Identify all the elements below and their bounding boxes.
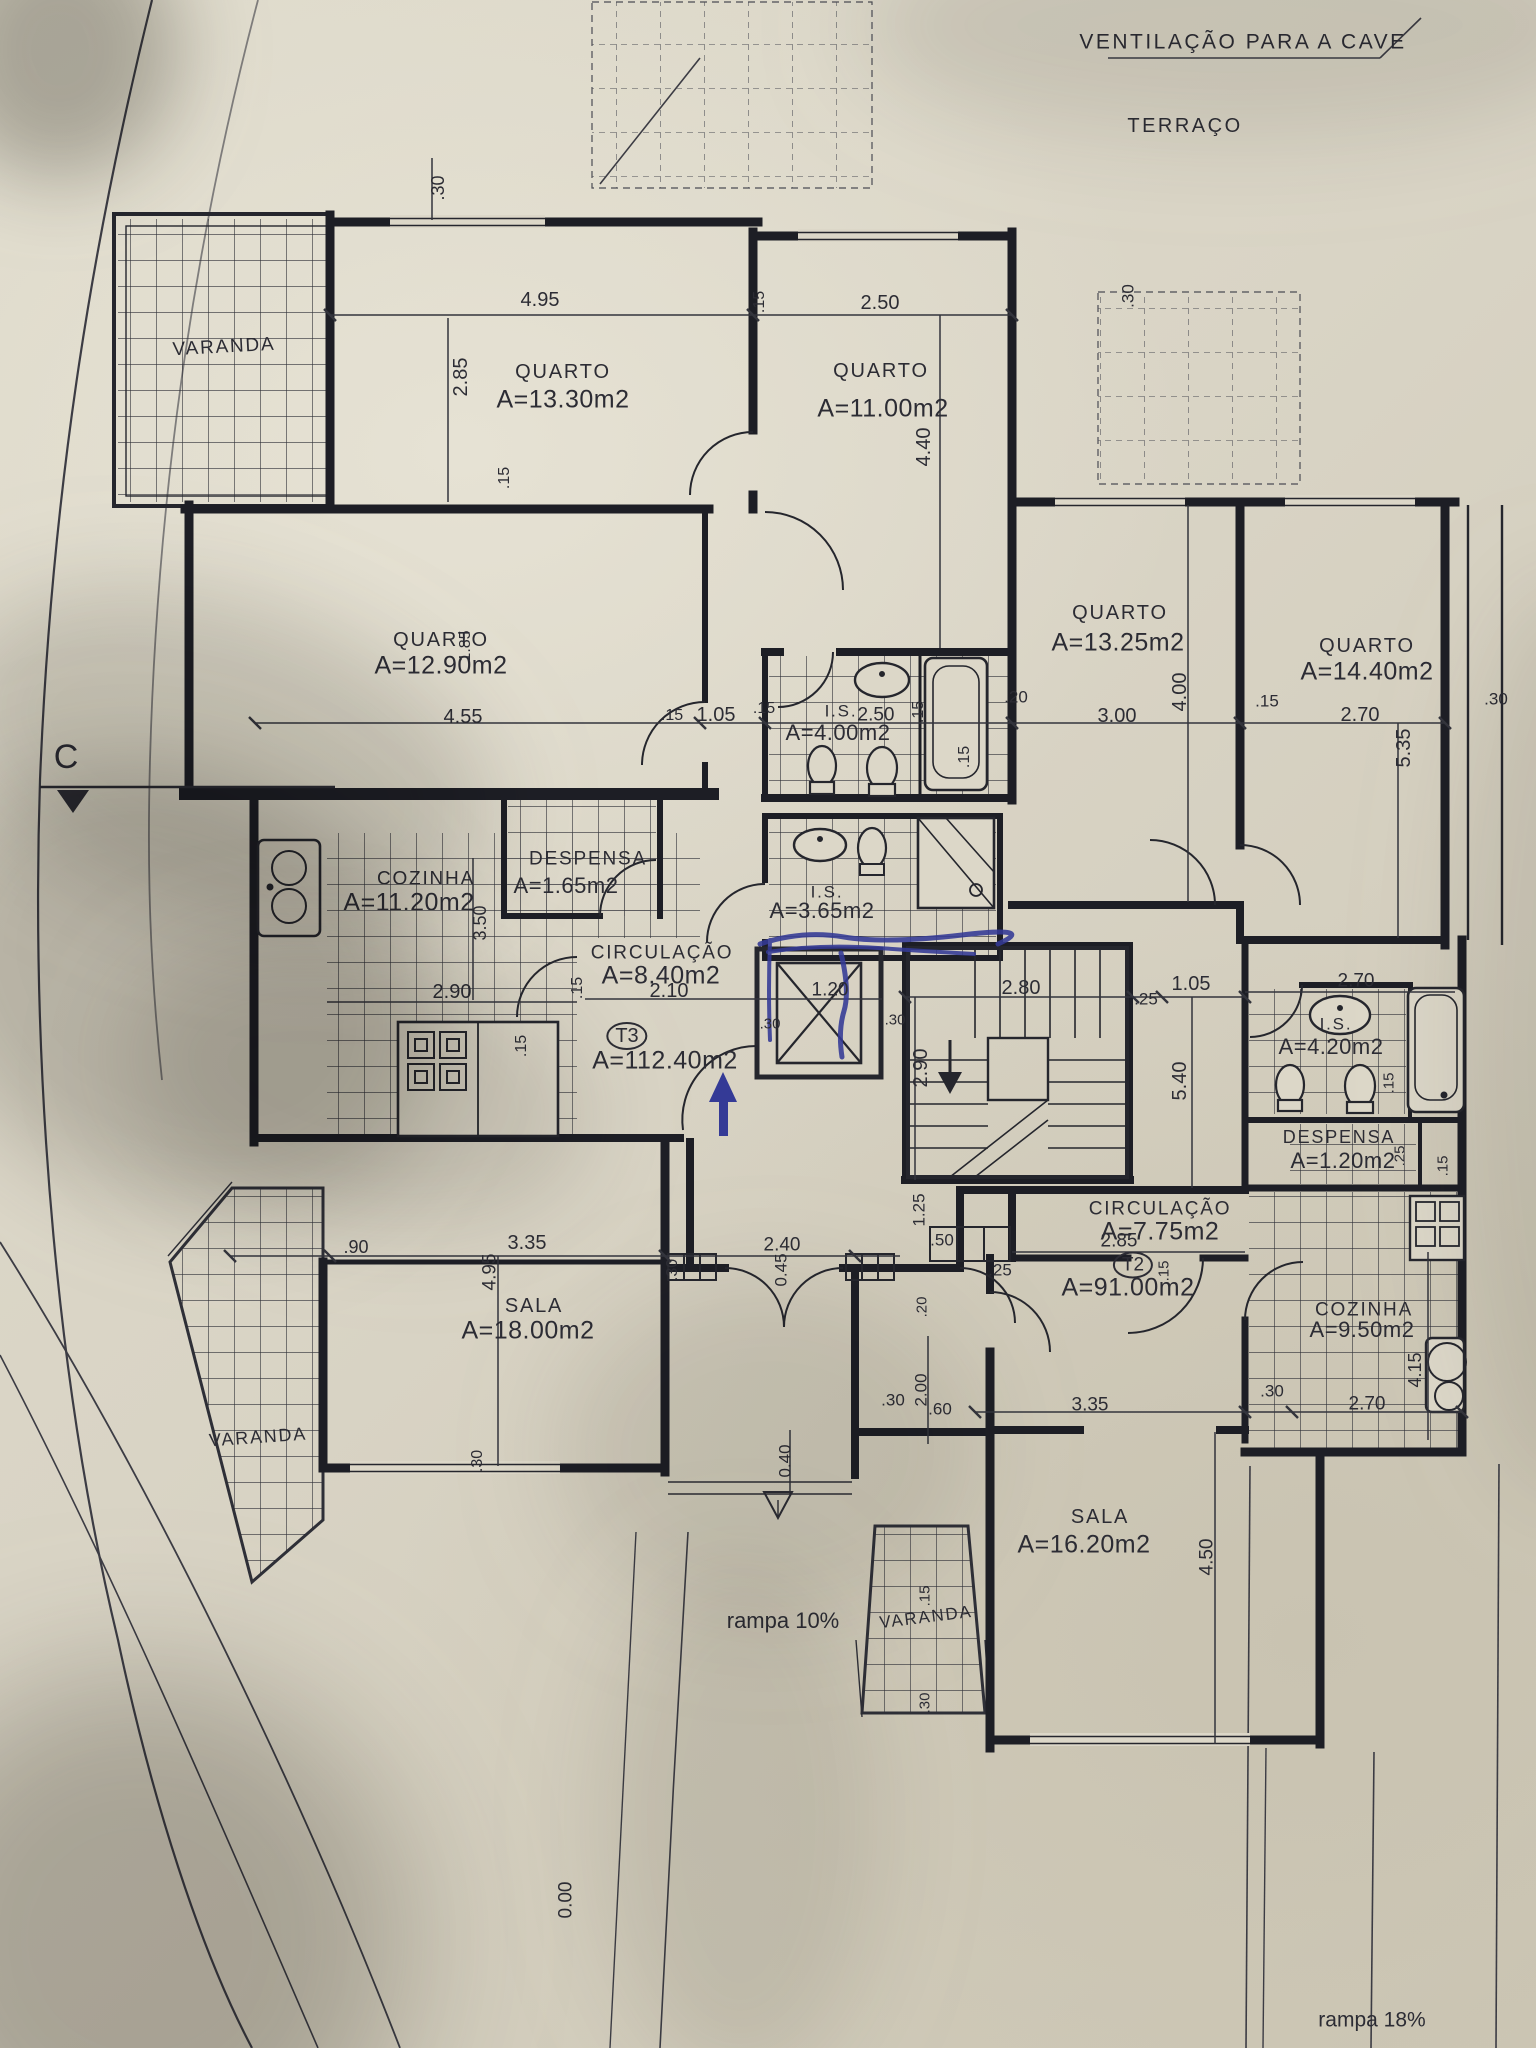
dim-label-270: 2.70 bbox=[1349, 1395, 1386, 1414]
dim-label-335: 3.35 bbox=[1072, 1396, 1109, 1415]
dim-label-285: 2.85 bbox=[1101, 1232, 1138, 1251]
dim-label-335: 3.35 bbox=[508, 1233, 547, 1253]
dim-label-290: 2.90 bbox=[911, 1049, 931, 1088]
room-label-is-420: I.S. bbox=[1320, 1016, 1353, 1033]
dim-label-25: .25 bbox=[1134, 991, 1158, 1008]
room-label-sala-t2: SALA bbox=[1071, 1507, 1129, 1527]
dim-label-280: 2.80 bbox=[1002, 978, 1041, 998]
dim-label-15: .15 bbox=[918, 1586, 933, 1607]
room-area-despensa-t2: A=1.20m2 bbox=[1291, 1150, 1396, 1172]
dim-label-270: 2.70 bbox=[1338, 972, 1375, 991]
dim-label-15: .15 bbox=[957, 746, 973, 768]
room-label-sala-t3: SALA bbox=[505, 1296, 563, 1316]
dim-label-15: .15 bbox=[1157, 1261, 1172, 1282]
dim-label-15: .15 bbox=[570, 977, 586, 999]
room-label-despensa-t3: DESPENSA bbox=[529, 850, 647, 869]
dim-label-185: 1.85 bbox=[458, 630, 474, 661]
room-label-despensa-t2: DESPENSA bbox=[1283, 1128, 1395, 1146]
room-area-cozinha-t2: A=9.50m2 bbox=[1310, 1319, 1415, 1341]
room-area-quarto-1330: A=13.30m2 bbox=[496, 388, 629, 413]
dim-label-535: 5.35 bbox=[1394, 729, 1414, 768]
dim-label-30: .30 bbox=[885, 1013, 906, 1028]
dim-label-15: .15 bbox=[1255, 693, 1279, 710]
room-area-sala-t2: A=16.20m2 bbox=[1017, 1533, 1150, 1558]
dim-label-20: .20 bbox=[915, 1297, 930, 1318]
dim-label-495: 4.95 bbox=[521, 290, 560, 310]
floor-plan-photo: VENTILAÇÃO PARA A CAVETERRAÇOCVARANDAQUA… bbox=[0, 0, 1536, 2048]
room-label-varanda-top: VARANDA bbox=[172, 335, 276, 359]
room-label-quarto-1440: QUARTO bbox=[1319, 636, 1415, 656]
dim-label-15: .15 bbox=[753, 701, 775, 717]
dim-label-30: .30 bbox=[1120, 284, 1137, 308]
dim-label-30: .30 bbox=[760, 1017, 781, 1032]
apartment-area-t2: A=91.00m2 bbox=[1061, 1276, 1194, 1301]
dim-label-210: 2.10 bbox=[650, 981, 689, 1001]
dim-label-15: .15 bbox=[911, 701, 927, 723]
dim-label-15: .15 bbox=[1382, 1073, 1397, 1094]
room-label-quarto-1290: QUARTO bbox=[393, 630, 489, 650]
room-area-is-400: A=4.00m2 bbox=[786, 722, 891, 744]
dim-label-440: 4.40 bbox=[914, 428, 934, 467]
room-area-quarto-1325: A=13.25m2 bbox=[1051, 631, 1184, 656]
annotation-level: 0.00 bbox=[557, 1882, 576, 1919]
dim-label-90: .90 bbox=[343, 1238, 368, 1256]
dim-label-30: .30 bbox=[429, 175, 447, 200]
dim-label-270: 2.70 bbox=[1341, 705, 1380, 725]
dim-label-15: .15 bbox=[1436, 1156, 1451, 1177]
dim-label-105: 1.05 bbox=[697, 705, 736, 725]
dim-label-30: .30 bbox=[1260, 1383, 1284, 1400]
room-area-quarto-1440: A=14.40m2 bbox=[1300, 660, 1433, 685]
room-label-quarto-1100: QUARTO bbox=[833, 361, 929, 381]
dim-label-540: 5.40 bbox=[1170, 1062, 1190, 1101]
room-area-quarto-1100: A=11.00m2 bbox=[817, 397, 948, 422]
dim-label-50: .50 bbox=[930, 1232, 954, 1249]
room-label-varanda-bottom: VARANDA bbox=[879, 1603, 974, 1631]
dim-label-15: .15 bbox=[752, 291, 768, 313]
room-label-quarto-1325: QUARTO bbox=[1072, 603, 1168, 623]
dim-label-20: .20 bbox=[1004, 689, 1028, 706]
dim-label-495: 4.95 bbox=[481, 1254, 500, 1291]
dim-label-250: 2.50 bbox=[861, 293, 900, 313]
room-area-despensa-t3: A=1.65m2 bbox=[514, 875, 619, 897]
dim-label-400: 4.00 bbox=[1170, 673, 1190, 712]
room-label-is-400: I.S. bbox=[825, 703, 858, 720]
dim-label-125: 1.25 bbox=[911, 1193, 928, 1226]
room-label-circulacao-t3: CIRCULAÇÃO bbox=[591, 944, 734, 963]
dim-label-15: .15 bbox=[497, 467, 513, 489]
dim-label-350: 3.50 bbox=[471, 905, 489, 940]
room-label-varanda-left: VARANDA bbox=[208, 1425, 307, 1450]
dim-label-25: .25 bbox=[1393, 1146, 1408, 1167]
room-label-circulacao-t2: CIRCULAÇÃO bbox=[1089, 1200, 1232, 1219]
apartment-area-t3: A=112.40m2 bbox=[592, 1049, 738, 1074]
dim-label-450: 4.50 bbox=[1198, 1539, 1217, 1576]
dim-label-105: 1.05 bbox=[1172, 974, 1211, 994]
annotation-rampa-18: rampa 18% bbox=[1318, 2010, 1425, 2031]
dim-label-240: 2.40 bbox=[764, 1236, 801, 1255]
dim-label-15: .15 bbox=[661, 708, 683, 724]
room-label-quarto-1330: QUARTO bbox=[515, 362, 611, 382]
room-area-is-420: A=4.20m2 bbox=[1279, 1036, 1384, 1058]
dim-label-25: .25 bbox=[988, 1262, 1012, 1279]
dim-label-30: .30 bbox=[918, 1693, 933, 1714]
dim-label-120: 1.20 bbox=[812, 981, 849, 1000]
room-area-is-365: A=3.65m2 bbox=[770, 900, 875, 922]
dim-label-415: 4.15 bbox=[1406, 1352, 1424, 1387]
dim-label-30: .30 bbox=[665, 1259, 681, 1281]
room-area-sala-t3: A=18.00m2 bbox=[461, 1319, 594, 1344]
dim-label-30: .30 bbox=[470, 1450, 486, 1472]
dim-label-285: 2.85 bbox=[451, 358, 471, 397]
dim-label-300: 3.00 bbox=[1098, 706, 1137, 726]
